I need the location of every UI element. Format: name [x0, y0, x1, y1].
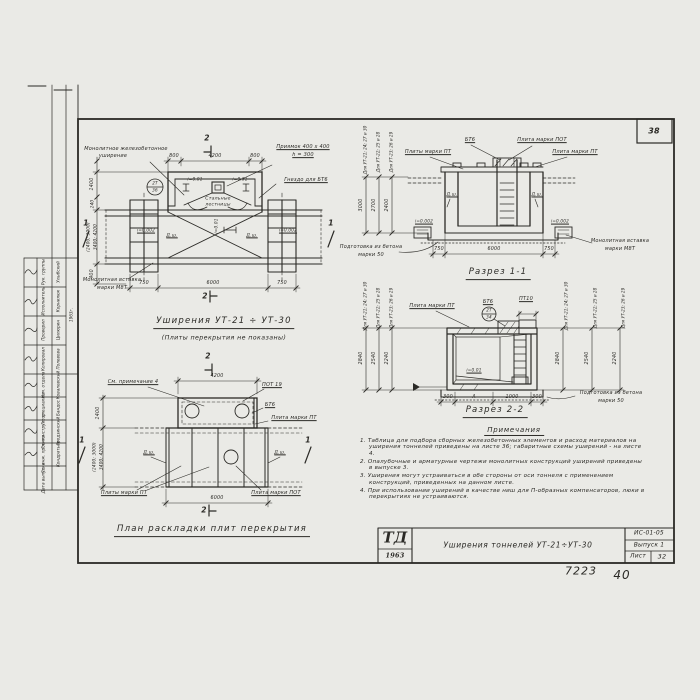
section1-variant-1-label: Для УТ-22; 25 и 28 [377, 132, 382, 173]
stamp-g2-role-4: Дата выпуска [42, 463, 47, 494]
org-logo-year: 1963 [386, 552, 405, 559]
section1-variant-2-value: 2400 [385, 198, 391, 211]
stamp-g2-name-3: Кондратьев [57, 441, 62, 467]
plan-bottom-section-mark-2-top: 2 [205, 353, 210, 362]
section1-joint-left: Д.ш. [446, 192, 457, 197]
handwritten-doc-number: 7223 [565, 566, 597, 579]
plan-top-section-mark-1-right: 1 [328, 220, 333, 229]
plan-top-dim-1400: 1400 [90, 177, 96, 190]
plan-top-dim-3400-4200: 3400; 4200 [94, 224, 99, 250]
stamp-grid [24, 85, 78, 490]
plan-bottom-plate-pt-label: Плита марки ПТ [271, 416, 316, 422]
section1-prep-label-1: Подготовка из бетона [340, 245, 403, 251]
section2-prep-label-1: Подготовка из бетона [580, 391, 643, 397]
plan-top-dim-800-right: 800 [250, 154, 260, 160]
stamp-g1-name-3: Полевова [57, 348, 62, 369]
plan-bottom-section-mark-1-left: 1 [79, 437, 84, 446]
plan-top-pit-slope-left: i=0.01 [187, 178, 202, 183]
section1-variant-2-label: Для УТ-23; 26 и 29 [390, 132, 395, 173]
org-logo: ТД [383, 529, 408, 546]
plan-top-insert-label-2: марки М8Т [97, 286, 127, 292]
section2-detail-mark-top: 2Т [486, 309, 492, 314]
plan-bottom-plate-pot-label: Плита марки ПОТ [251, 491, 300, 497]
plan-bottom-dim-4200: 4200 [210, 374, 223, 380]
section1-bt6-label: БТ6 [465, 138, 475, 144]
plan-bottom-joint-left: Д.ш. [143, 450, 155, 455]
section2-left-variant-0-value: 2840 [359, 351, 365, 364]
stamp-date-year: 1963г. [70, 308, 75, 322]
section2-right-variant-0-value: 2840 [556, 351, 562, 364]
note-item-4: 4. При использовании уширений в качестве… [360, 488, 647, 501]
section2-right-variant-0-label: Для УТ-21; 24; 27 и 30 [565, 282, 570, 331]
section2-dim-300-right: 300 [532, 395, 542, 401]
section2-right-variant-2-value: 2240 [613, 351, 619, 364]
notes-list: 1. Таблица для подбора сборных железобет… [360, 438, 647, 502]
section1-insert-label-1: Монолитная вставка [591, 239, 649, 245]
plan-bottom-joint-right: Д.ш. [274, 450, 286, 455]
stamp-g1-role-0: Рук. группы [42, 259, 47, 285]
plan-bottom-plates-pt-label: Плиты марки ПТ [101, 491, 147, 497]
drawing-linework [0, 0, 700, 700]
section2-prep-label-2: марки 50 [598, 399, 624, 405]
stamp-g1-name-1: Корнилюк [57, 290, 62, 312]
plan-top-title: Уширения УТ-21 ÷ УТ-30 [153, 317, 294, 329]
plan-bottom-bt6-label: БТ6 [265, 403, 275, 409]
plan-bottom-dim-3400-4200: 3400; 4200 [100, 444, 105, 470]
section1-variant-1-value: 2700 [372, 198, 378, 211]
plan-bottom-pot19-label: ПОТ 19 [262, 383, 282, 389]
section2-left-variant-2-label: Для УТ-23; 26 и 29 [390, 288, 395, 329]
plan-top-slope-vertical: i=0.01 [215, 218, 220, 233]
stamp-g2-name-0: Ковалевский [57, 371, 62, 400]
series-code: ИС-01-05 [634, 531, 664, 538]
section2-detail-mark-bottom: 34 [486, 315, 492, 320]
section2-plate-pt-label: Плита марки ПТ [409, 304, 454, 310]
corner-sheet-number: 38 [648, 126, 660, 135]
plan-top-ladders-label-1: Стальные [205, 196, 230, 201]
section2-right-variant-2-label: Для УТ-23; 26 и 29 [622, 288, 627, 329]
plan-top-pit-slope-right: i=0.01 [232, 178, 247, 183]
section1-joint-right: Д.ш. [531, 192, 542, 197]
plan-top-section-mark-2-top: 2 [204, 135, 209, 144]
plan-top-pit-label-1: Приямок 400 x 400 [276, 145, 329, 151]
plan-top-ladders-label-2: лестницы [205, 202, 230, 207]
plan-bottom-dim-6000: 6000 [210, 496, 223, 502]
plan-top-detail-mark-bottom: 36 [152, 188, 158, 193]
note-item-1: 1. Таблица для подбора сборных железобет… [360, 438, 647, 457]
section2-pt10-label: ПТ10 [519, 297, 533, 303]
section1-variant-0-label: Для УТ-21; 24; 27 и 30 [364, 126, 369, 175]
section2-title: Разрез 2-2 [463, 406, 528, 418]
section1-plate-pot-label: Плита марки ПОТ [517, 138, 566, 144]
plan-top-detail-mark-top: 2Т [152, 181, 158, 186]
plan-top-dim-800-left: 800 [169, 154, 179, 160]
plan-bottom-dim-1400: 1400 [96, 406, 102, 419]
section2-bt6-label: БТ6 [483, 300, 493, 306]
section1-slope-left: i=0.002 [415, 220, 433, 225]
stamp-signatures [25, 270, 37, 456]
plan-top-joint-left: Д.ш. [166, 233, 178, 238]
section2-right-variant-1-value: 2540 [585, 351, 591, 364]
plan-top-floor-slope-right: i=0.002 [279, 229, 297, 234]
section1-dim-750-left: 750 [434, 247, 444, 253]
plan-top-dim-240: 240 [91, 200, 96, 209]
drawing-title: Уширения тоннелей УТ-21÷УТ-30 [444, 542, 593, 551]
section2-right-variant-1-label: Для УТ-22; 25 и 28 [594, 288, 599, 329]
sheet-number: 32 [658, 553, 667, 560]
stamp-g1-role-3: Копировал [42, 347, 47, 371]
note-item-3: 3. Уширения могут устраиваться в обе сто… [360, 473, 647, 486]
stamp-g1-name-0: Улыбский [57, 261, 62, 282]
section1-prep-label-2: марки 50 [358, 253, 384, 259]
section2-slope-label: i=0.01 [466, 369, 481, 374]
plan-top-insert-label-1: Монолитная вставка [83, 278, 141, 284]
plan-top-dim-400: 400 [90, 269, 96, 279]
plan-top-dim-750-right: 750 [277, 281, 287, 287]
plan-bottom-see-note-label: См. примечание 4 [108, 380, 159, 386]
notes-heading: Примечания [484, 426, 544, 436]
plan-top-dim-4200: 4200 [208, 154, 221, 160]
plan-top-widening-label-1: Монолитное железобетонное [84, 147, 167, 153]
stamp-g1-role-1: Исполнитель [42, 286, 47, 315]
section1-title: Разрез 1-1 [466, 268, 531, 280]
section2-dim-300-left: 300 [443, 395, 453, 401]
section2-left-variant-0-label: Для УТ-21; 24; 27 и 30 [364, 282, 369, 331]
issue-number: Выпуск 1 [634, 542, 665, 549]
section2-dim-a: А [472, 395, 475, 401]
stamp-g1-role-2: Проверил [42, 319, 47, 340]
section1-dim-750-right: 750 [544, 247, 554, 253]
plan-bottom-section-mark-2-bottom: 2 [201, 507, 206, 516]
plan-top-pit-label-2: h = 300 [292, 153, 313, 159]
plan-top-dim-6000: 6000 [206, 281, 219, 287]
plan-top-joint-right: Д.ш. [246, 233, 258, 238]
plan-top-subtitle: (Плиты перекрытия не показаны) [162, 334, 287, 341]
plan-top-section-mark-2-bottom: 2 [202, 293, 207, 302]
sheet-label: Лист [630, 554, 646, 561]
plan-bottom-dim-2400-3000: (2400; 3000) [93, 442, 98, 472]
plan-top-section-mark-1-left: 1 [83, 220, 88, 229]
plan-bottom-title: План раскладки плит перекрытия [114, 525, 310, 537]
stamp-g1-name-2: Цилюрин [57, 320, 62, 340]
note-item-2: 2. Опалубочные и арматурные чертежи моно… [360, 459, 647, 472]
stamp-g2-name-1: Бандос [57, 400, 62, 416]
plan-top-widening-label-2: уширение [99, 154, 127, 160]
plan-top-dim-750-left: 750 [139, 281, 149, 287]
section2-dim-1000: 1000 [505, 395, 518, 401]
section2-left-variant-2-value: 2240 [385, 351, 391, 364]
drawing-sheet: 38 Монолитное железобетонное уширение Пр… [0, 0, 700, 700]
section1-slope-right: i=0.002 [551, 220, 569, 225]
section-1-linework [362, 145, 592, 258]
section1-plate-pt-label: Плита марки ПТ [552, 150, 597, 156]
section2-left-variant-1-value: 2540 [372, 351, 378, 364]
plan-top-floor-slope-left: i=0.002 [137, 229, 155, 234]
handwritten-page-number: 40 [613, 569, 630, 583]
plan-bottom-section-mark-1-right: 1 [305, 437, 310, 446]
section1-plates-pt-label: Плиты марки ПТ [405, 150, 451, 156]
section1-insert-label-2: марки М8Т [605, 247, 635, 253]
section1-dim-6000: 6000 [487, 247, 500, 253]
section2-left-variant-1-label: Для УТ-22; 25 и 28 [377, 288, 382, 329]
section1-variant-0-value: 3000 [359, 198, 365, 211]
plan-top-socket-label: Гнездо для БТ6 [284, 178, 328, 184]
